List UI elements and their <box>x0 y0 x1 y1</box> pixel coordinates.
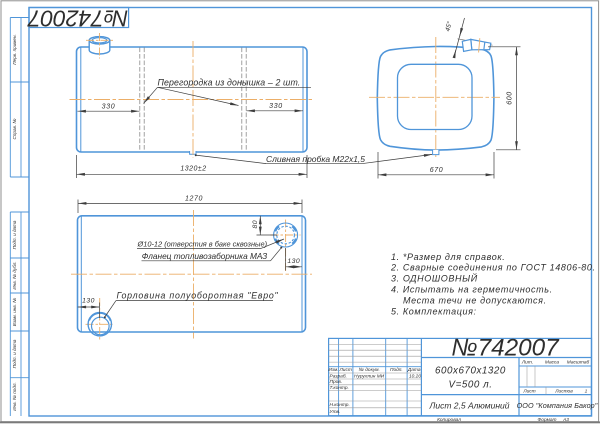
svg-text:10.20: 10.20 <box>409 373 421 379</box>
svg-text:А3: А3 <box>562 417 569 423</box>
svg-text:V=500 л.: V=500 л. <box>449 379 493 390</box>
svg-text:Перв. примен.: Перв. примен. <box>12 34 17 65</box>
svg-text:Фланец топливозаборника МАЗ: Фланец топливозаборника МАЗ <box>142 251 267 261</box>
svg-text:330: 330 <box>102 104 116 111</box>
svg-text:ООО "Компания Бакор": ООО "Компания Бакор" <box>517 401 598 410</box>
svg-text:№742007: №742007 <box>27 5 129 31</box>
svg-text:2. Сварные соединения по ГОСТ: 2. Сварные соединения по ГОСТ 14806-80. <box>390 263 596 273</box>
svg-text:Лист: Лист <box>339 367 352 373</box>
svg-text:Изм.: Изм. <box>328 367 338 373</box>
svg-text:Масштаб: Масштаб <box>567 360 590 366</box>
svg-text:Справ. №: Справ. № <box>12 119 17 140</box>
svg-text:Перегородка из донышка – 2 шт.: Перегородка из донышка – 2 шт. <box>158 77 301 87</box>
svg-text:Подп. и дата: Подп. и дата <box>12 339 17 368</box>
svg-text:Инв. № подл.: Инв. № подл. <box>12 382 17 411</box>
svg-text:600: 600 <box>507 91 514 104</box>
svg-text:Н.контр.: Н.контр. <box>330 402 350 408</box>
svg-text:130: 130 <box>82 297 95 304</box>
svg-text:Масса: Масса <box>545 360 560 366</box>
svg-text:670: 670 <box>430 167 443 174</box>
svg-text:Взам. инв. №: Взам. инв. № <box>12 298 17 326</box>
svg-text:Горловина полуоборотная "Евро": Горловина полуоборотная "Евро" <box>117 291 279 301</box>
svg-text:Листов: Листов <box>554 389 573 395</box>
svg-text:Пров.: Пров. <box>330 379 343 385</box>
svg-text:Утв.: Утв. <box>330 409 341 415</box>
svg-text:5. Комплектация:: 5. Комплектация: <box>391 307 477 317</box>
svg-text:Лист 2,5 Алюминий: Лист 2,5 Алюминий <box>429 401 510 411</box>
svg-text:Подп.: Подп. <box>390 367 403 373</box>
svg-text:Места течи не допускаются.: Места течи не допускаются. <box>403 296 547 306</box>
svg-text:4. Испытать на герметичность.: 4. Испытать на герметичность. <box>391 285 553 295</box>
svg-text:Ø10-12 (отверстия в баке сквоз: Ø10-12 (отверстия в баке сквозные) <box>137 239 268 248</box>
svg-text:1: 1 <box>585 389 588 395</box>
svg-text:№742007: №742007 <box>451 334 560 361</box>
svg-text:Инв. № дубл.: Инв. № дубл. <box>12 261 17 289</box>
svg-text:Т.контр.: Т.контр. <box>330 385 349 391</box>
svg-text:130: 130 <box>287 258 300 265</box>
svg-text:Подп. и дата: Подп. и дата <box>12 220 17 249</box>
svg-text:3. ОДНОШОВНЫЙ: 3. ОДНОШОВНЫЙ <box>391 273 478 284</box>
svg-text:Формат: Формат <box>537 417 556 423</box>
svg-text:600х670х1320: 600х670х1320 <box>435 365 506 376</box>
svg-text:1. *Размер для справок.: 1. *Размер для справок. <box>391 252 505 262</box>
svg-text:Лист: Лист <box>522 389 535 395</box>
svg-text:Нуруллин МИ: Нуруллин МИ <box>354 373 385 379</box>
svg-text:№ докум.: № докум. <box>359 367 380 373</box>
svg-text:Лит.: Лит. <box>521 360 533 366</box>
svg-text:1320±2: 1320±2 <box>180 166 206 173</box>
svg-text:Разраб.: Разраб. <box>330 373 347 379</box>
svg-text:80: 80 <box>252 220 259 229</box>
svg-text:Копировал: Копировал <box>437 417 461 423</box>
svg-text:Дата: Дата <box>407 367 421 373</box>
svg-text:Сливная пробка М22х1,5: Сливная пробка М22х1,5 <box>266 154 365 164</box>
svg-text:330: 330 <box>269 103 283 110</box>
svg-text:1270: 1270 <box>185 196 203 203</box>
